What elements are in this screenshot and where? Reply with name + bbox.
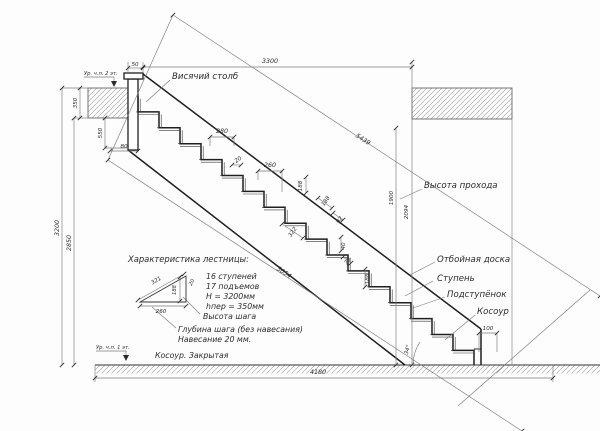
misc-marks — [111, 77, 420, 365]
dim-slope-angle: 34° — [404, 344, 412, 355]
level1-arrow-icon — [123, 355, 129, 361]
dim-tread-full: 280 — [216, 128, 228, 135]
specs-item-steps: 16 ступеней — [206, 272, 257, 281]
stair-board-detail — [136, 99, 474, 353]
tri-hyp: 321 — [150, 276, 162, 287]
label-tread: Ступень — [437, 274, 475, 284]
specs-title: Характеристика лестницы: — [127, 254, 249, 264]
left-floor-slab — [88, 88, 128, 118]
dim-tread-clear: 260 — [264, 162, 276, 169]
dim-clear-height: 2850 — [66, 235, 73, 251]
ground-hatch — [95, 366, 600, 374]
dim-tick — [106, 158, 110, 162]
specs-step-depth: Глубина шага (без навесания) — [178, 325, 303, 334]
extension-line — [445, 315, 475, 340]
specs-stringer-note: Косоур. Закрытая — [155, 351, 229, 360]
floor-slabs — [88, 88, 600, 374]
tri-nose: 20 — [188, 278, 197, 287]
post-cap — [124, 73, 143, 79]
dim-headroom: 1900 — [389, 190, 395, 205]
dim-tick — [331, 211, 335, 215]
dim-detail-92: 92 — [336, 215, 345, 225]
right-floor-slab — [412, 88, 512, 119]
dim-headroom-full: 2094 — [404, 204, 410, 219]
stair-section-drawing: 3300 4180 3200 2850 350 550 80 50 280 20… — [0, 0, 600, 431]
dim-post-drop: 550 — [98, 127, 104, 138]
dim-tick — [182, 272, 186, 276]
dim-total-height: 3200 — [54, 220, 61, 236]
tri-base: 260 — [156, 309, 167, 315]
dim-step-pitch: 322 — [288, 226, 299, 239]
dim-post-cap: 50 — [131, 62, 139, 68]
label-stringer: Косоур — [477, 307, 509, 317]
dim-foot: 100 — [483, 326, 494, 332]
extension-line — [108, 15, 173, 160]
specs-item-rises: 17 подъемов — [206, 282, 260, 291]
dim-opening-span: 3300 — [262, 58, 278, 65]
dim-tick — [330, 206, 334, 210]
extension-line — [405, 281, 433, 296]
dim-tick — [136, 298, 140, 302]
label-level-1: Ур. ч.п. 1 эт. — [96, 345, 130, 351]
step-spec-triangle — [140, 276, 186, 302]
specs-item-height: H = 3200мм — [206, 292, 255, 301]
extension-line — [410, 262, 435, 275]
dim-tick — [316, 196, 320, 200]
post-body — [128, 79, 138, 150]
dim-total-run: 4180 — [310, 369, 326, 376]
label-riser: Подступёнок — [447, 290, 507, 300]
dim-tick — [301, 236, 305, 240]
stair-drawing-sheet: 3300 4180 3200 2850 350 550 80 50 280 20… — [0, 0, 600, 431]
extension-line — [413, 297, 445, 308]
extension-line — [400, 189, 422, 199]
specs-overhang-note: Навесание 20 мм. — [178, 335, 251, 344]
tri-height: 188 — [172, 284, 178, 295]
dim-riser-height: 188 — [298, 180, 304, 191]
label-passage-height: Высота прохода — [424, 181, 498, 191]
dim-detail-188a: 188 — [321, 195, 332, 208]
dim-tick — [280, 222, 284, 226]
specs-step-height: Высота шага — [203, 312, 256, 321]
slope-angle-arc — [413, 342, 420, 365]
specs-item-hper: hпер = 350мм — [206, 302, 264, 311]
level2-arrow-icon — [111, 81, 117, 87]
dim-nosing: 20 — [234, 155, 244, 164]
label-hanging-post: Висячий столб — [172, 72, 239, 82]
dim-detail-40: 40 — [341, 242, 347, 250]
label-kick-board: Отбойная доска — [437, 255, 510, 265]
dim-slab-thickness: 350 — [73, 97, 79, 108]
dim-detail-188b: 188 — [365, 273, 371, 284]
dim-tick — [171, 13, 175, 17]
dim-stringer-inner: 5054 — [275, 265, 292, 280]
dim-post-offset: 80 — [120, 144, 128, 150]
label-level-2: Ур. ч.п. 2 эт. — [84, 71, 118, 77]
dim-stringer-outer: 5439 — [354, 132, 371, 147]
